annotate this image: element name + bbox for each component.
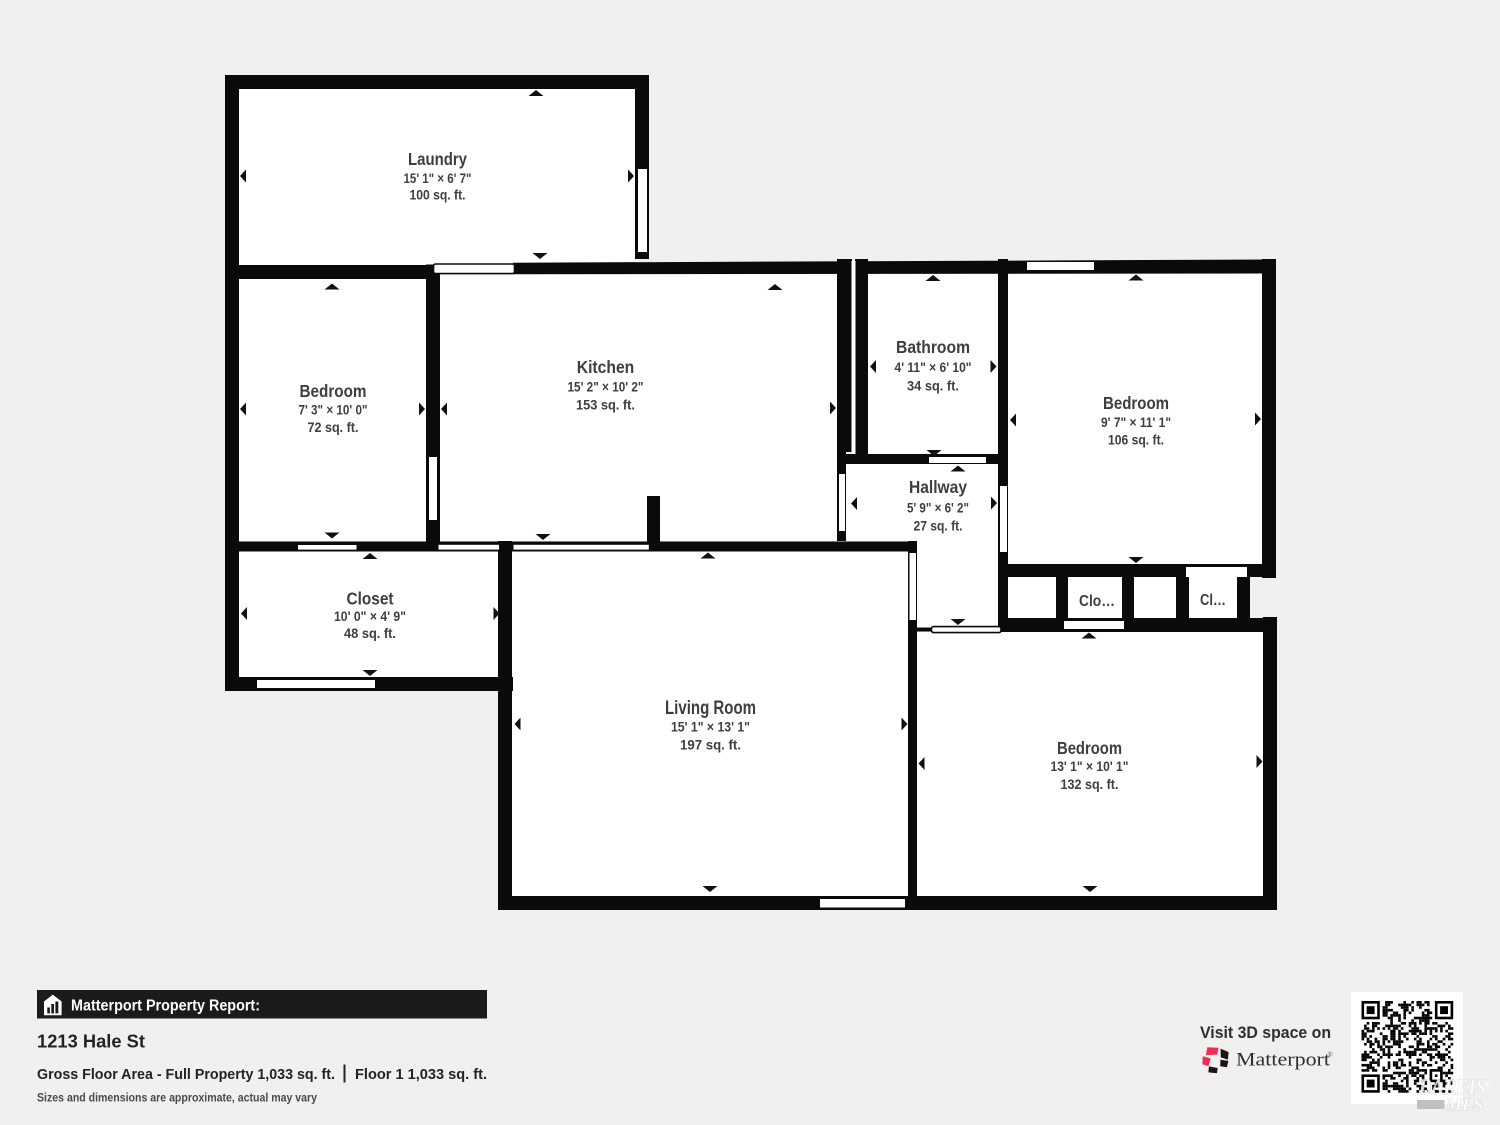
svg-text:Clo…: Clo…	[1079, 593, 1115, 610]
svg-text:7' 3" × 10' 0": 7' 3" × 10' 0"	[299, 403, 368, 419]
svg-text:15' 1" × 6' 7": 15' 1" × 6' 7"	[404, 171, 472, 187]
svg-text:13' 1" × 10' 1": 13' 1" × 10' 1"	[1051, 759, 1129, 775]
svg-text:Bedroom: Bedroom	[1103, 393, 1169, 413]
svg-text:Living Room: Living Room	[665, 698, 756, 719]
svg-text:106 sq. ft.: 106 sq. ft.	[1108, 433, 1164, 448]
svg-text:Floor 1 1,033 sq. ft.: Floor 1 1,033 sq. ft.	[355, 1066, 487, 1083]
svg-text:15' 2" × 10' 2": 15' 2" × 10' 2"	[568, 380, 644, 396]
svg-text:Matterport Property Report:: Matterport Property Report:	[71, 998, 260, 1015]
svg-text:27 sq. ft.: 27 sq. ft.	[914, 519, 963, 534]
svg-text:15' 1" × 13' 1": 15' 1" × 13' 1"	[671, 720, 750, 736]
svg-text:9' 7" × 11' 1": 9' 7" × 11' 1"	[1101, 415, 1171, 431]
svg-text:100 sq. ft.: 100 sq. ft.	[410, 188, 466, 203]
svg-text:Visit 3D space on: Visit 3D space on	[1200, 1023, 1331, 1042]
svg-text:Hallway: Hallway	[909, 477, 967, 497]
svg-text:10' 0" × 4' 9": 10' 0" × 4' 9"	[334, 609, 406, 625]
svg-text:72 sq. ft.: 72 sq. ft.	[308, 420, 359, 435]
svg-text:197 sq. ft.: 197 sq. ft.	[680, 738, 741, 753]
svg-text:Bathroom: Bathroom	[896, 337, 970, 357]
svg-text:MLS: MLS	[1445, 1095, 1483, 1114]
svg-text:Gross Floor Area - Full Proper: Gross Floor Area - Full Property 1,033 s…	[37, 1066, 335, 1083]
svg-text:®: ®	[1484, 1080, 1490, 1089]
svg-text:132 sq. ft.: 132 sq. ft.	[1061, 777, 1119, 792]
svg-text:5' 9" × 6' 2": 5' 9" × 6' 2"	[907, 501, 969, 517]
svg-text:Matterport: Matterport	[1236, 1051, 1331, 1071]
svg-text:1213 Hale St: 1213 Hale St	[37, 1031, 145, 1052]
svg-text:4' 11" × 6' 10": 4' 11" × 6' 10"	[895, 360, 972, 376]
svg-text:34 sq. ft.: 34 sq. ft.	[907, 379, 959, 394]
svg-text:Bedroom: Bedroom	[1057, 738, 1122, 758]
svg-text:Bedroom: Bedroom	[300, 381, 367, 401]
svg-text:®: ®	[1328, 1051, 1334, 1059]
svg-text:Laundry: Laundry	[408, 149, 467, 169]
svg-text:153 sq. ft.: 153 sq. ft.	[576, 398, 635, 413]
svg-text:Sizes and dimensions are appro: Sizes and dimensions are approximate, ac…	[37, 1091, 317, 1105]
svg-text:Kitchen: Kitchen	[577, 357, 635, 377]
svg-text:Cl…: Cl…	[1200, 592, 1226, 609]
svg-text:Closet: Closet	[347, 589, 394, 609]
svg-text:48 sq. ft.: 48 sq. ft.	[344, 626, 396, 641]
